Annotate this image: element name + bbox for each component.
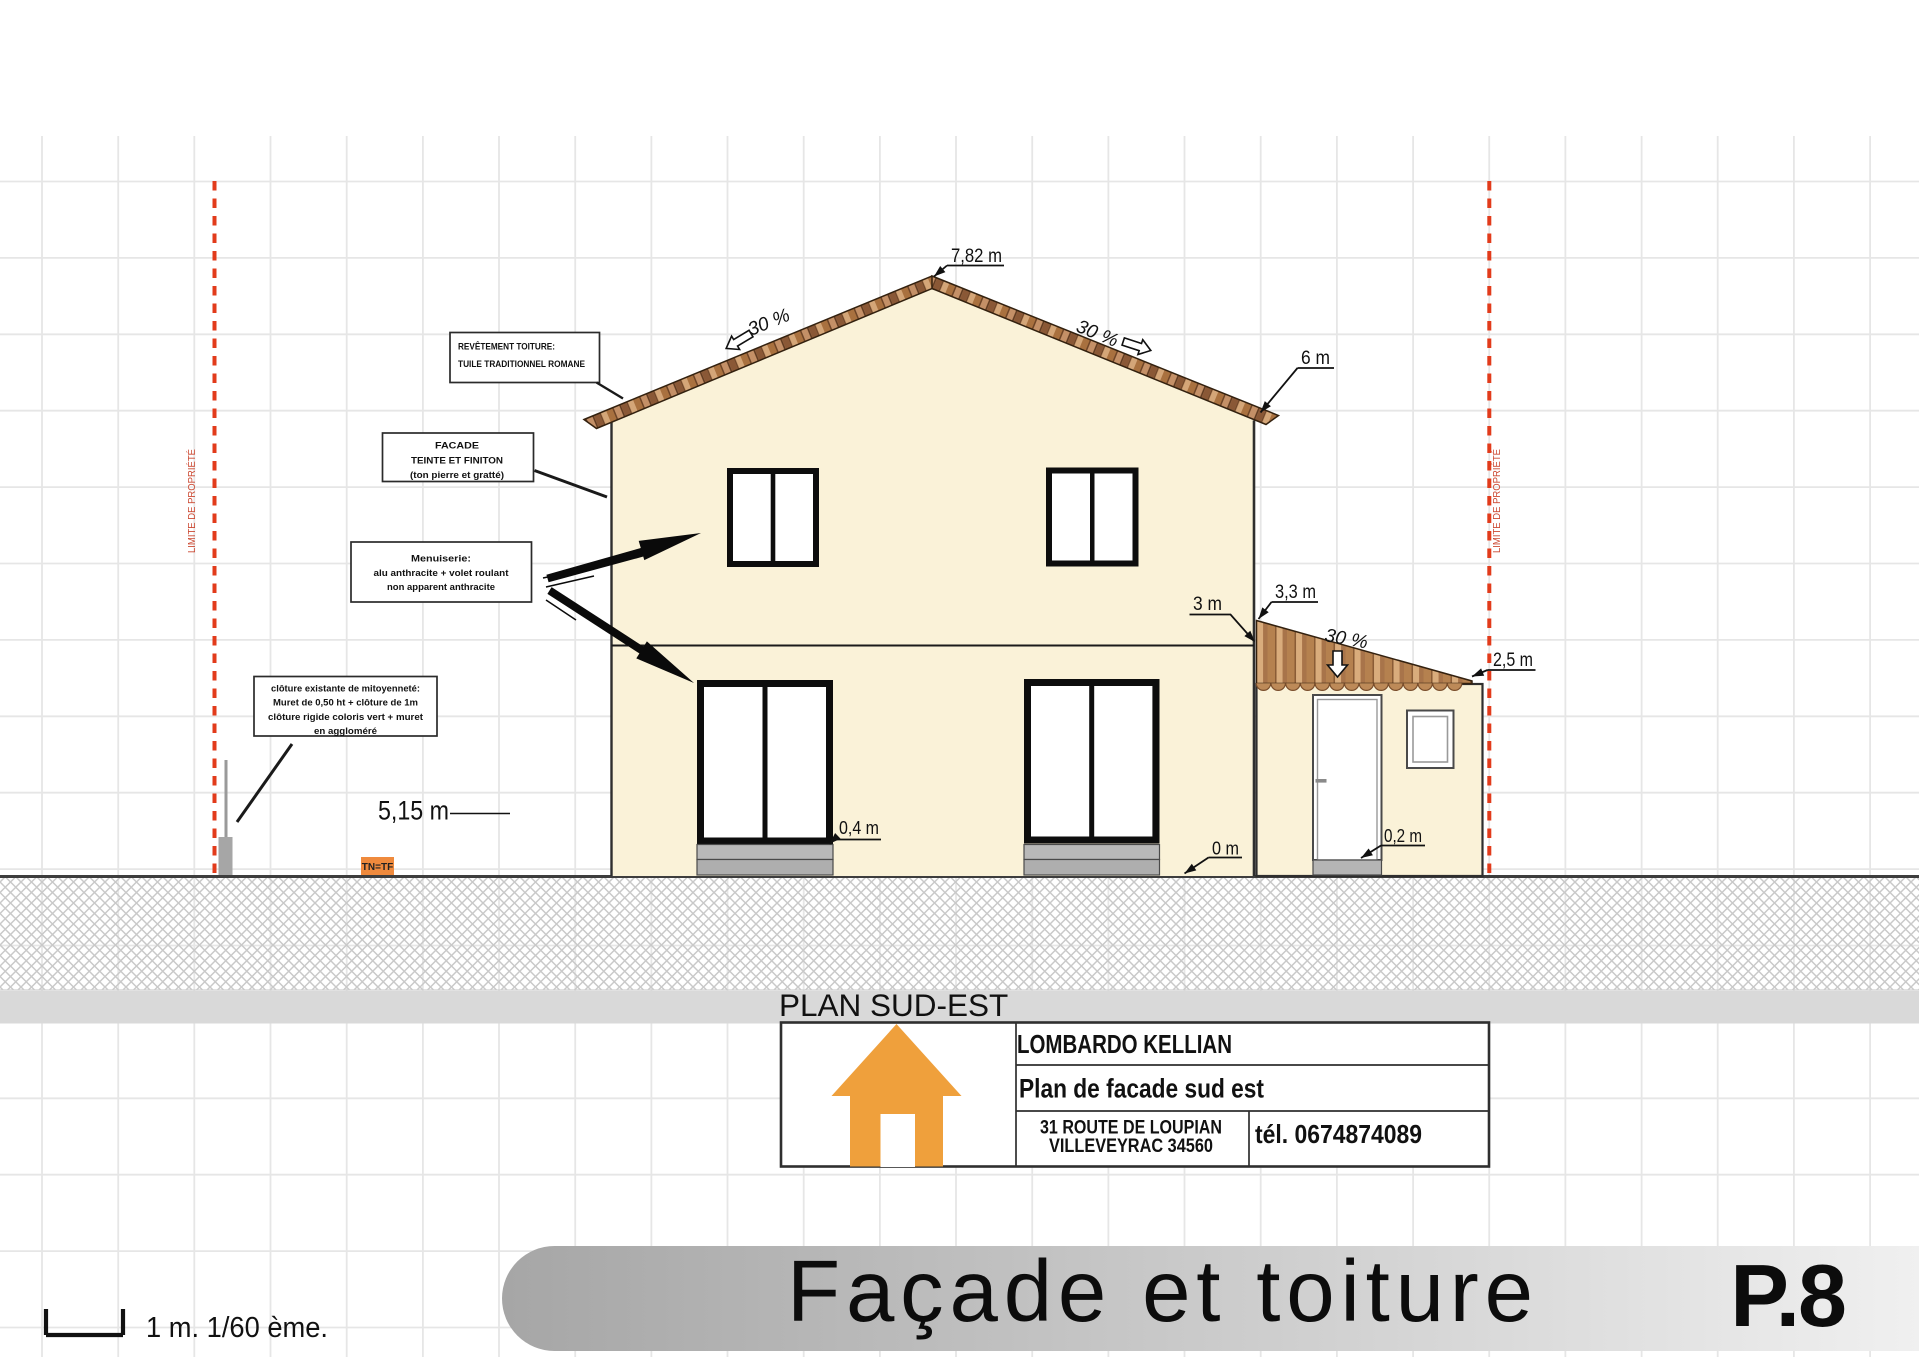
svg-text:Plan de facade sud est: Plan de facade sud est (1019, 1074, 1264, 1104)
svg-text:VILLEVEYRAC 34560: VILLEVEYRAC 34560 (1049, 1136, 1213, 1157)
svg-text:LIMITE DE PROPRIÉTÉ: LIMITE DE PROPRIÉTÉ (1490, 449, 1503, 553)
svg-text:P.8: P.8 (1730, 1246, 1845, 1345)
svg-text:Muret de 0,50 ht + clôture de: Muret de 0,50 ht + clôture de 1m (273, 698, 418, 708)
svg-text:FACADE: FACADE (435, 441, 480, 452)
svg-text:clôture existante de mitoyenne: clôture existante de mitoyenneté: (271, 684, 420, 694)
svg-text:TUILE TRADITIONNEL ROMANE: TUILE TRADITIONNEL ROMANE (458, 359, 585, 369)
svg-text:en aggloméré: en aggloméré (314, 726, 377, 736)
svg-text:5,15 m: 5,15 m (378, 796, 449, 826)
svg-text:PLAN SUD-EST: PLAN SUD-EST (779, 987, 1008, 1023)
svg-text:LIMITE DE PROPRIÉTÉ: LIMITE DE PROPRIÉTÉ (185, 449, 198, 553)
svg-text:tél. 0674874089: tél. 0674874089 (1255, 1119, 1422, 1149)
svg-text:REVÊTEMENT TOITURE:: REVÊTEMENT TOITURE: (458, 341, 555, 352)
svg-text:clôture rigide coloris vert +: clôture rigide coloris vert + muret (268, 712, 423, 722)
svg-text:2,5 m: 2,5 m (1493, 650, 1533, 671)
svg-text:LOMBARDO KELLIAN: LOMBARDO KELLIAN (1017, 1031, 1232, 1059)
svg-text:0 m: 0 m (1212, 839, 1239, 859)
svg-text:alu anthracite + volet roulant: alu anthracite + volet roulant (374, 568, 510, 579)
svg-text:7,82 m: 7,82 m (951, 246, 1002, 267)
svg-text:TN=TF: TN=TF (362, 862, 393, 873)
svg-text:3 m: 3 m (1193, 594, 1222, 615)
svg-text:(ton pierre et gratté): (ton pierre et gratté) (410, 470, 504, 481)
svg-text:0,4 m: 0,4 m (839, 818, 879, 838)
svg-text:1 m. 1/60 ème.: 1 m. 1/60 ème. (146, 1312, 328, 1344)
svg-text:Menuiserie:: Menuiserie: (411, 553, 471, 564)
svg-text:6 m: 6 m (1301, 348, 1330, 369)
svg-text:TEINTE ET FINITON: TEINTE ET FINITON (411, 455, 503, 466)
svg-text:non apparent anthracite: non apparent anthracite (387, 582, 495, 593)
svg-text:0,2 m: 0,2 m (1384, 826, 1422, 846)
svg-text:3,3 m: 3,3 m (1275, 582, 1316, 603)
